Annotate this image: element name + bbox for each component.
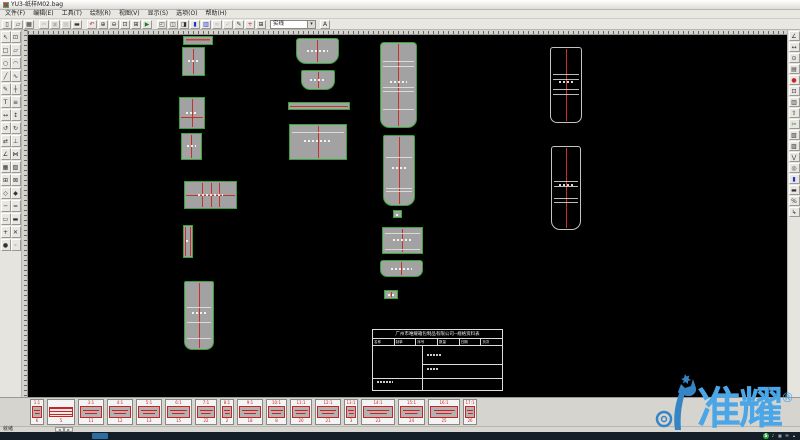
piece-i[interactable]: [301, 70, 335, 90]
line-icon[interactable]: ╱: [1, 70, 11, 82]
pattern-icon[interactable]: ▧: [11, 161, 21, 173]
toolbar-icon-group: ▯▱▦✂▣▤▬↶⊕⊖⊡⊞▶◰◫◨▮▥∞✓✎+⊞: [2, 20, 266, 29]
thumbnail-drawing: [49, 407, 73, 417]
title-block-note: [427, 354, 441, 356]
piece-label-marks: [307, 50, 328, 52]
grade-icon[interactable]: ▨: [789, 141, 800, 151]
dline-icon[interactable]: ═: [11, 200, 21, 212]
piece-s[interactable]: [551, 146, 581, 230]
thumbnail-drawing: [268, 406, 285, 418]
thumbnail-number: 11: [79, 418, 103, 424]
stitch-line: [383, 91, 414, 92]
stitch-line: [386, 188, 412, 189]
select-icon[interactable]: ↖: [1, 31, 11, 43]
stitch-line: [554, 202, 578, 203]
open-icon[interactable]: ▱: [13, 20, 23, 29]
export-icon[interactable]: ⇧: [789, 108, 800, 118]
stitch-line: [383, 87, 414, 88]
piece-label-marks: [304, 140, 332, 142]
cross-icon[interactable]: ┼: [11, 83, 21, 95]
rect-icon[interactable]: □: [1, 44, 11, 56]
plus-icon[interactable]: +: [1, 226, 11, 238]
piece-label-marks: [392, 167, 407, 169]
piece-list-icon[interactable]: ▥: [789, 97, 800, 107]
piece-j[interactable]: [288, 102, 350, 110]
window-split-icon[interactable]: ◨: [179, 20, 189, 29]
tray-message-icon[interactable]: ✉: [784, 433, 790, 439]
window-cascade-icon[interactable]: ◰: [157, 20, 167, 29]
mark-icon[interactable]: ●: [789, 75, 800, 85]
thumbnail-number: 3: [345, 418, 357, 424]
text-icon[interactable]: T: [1, 96, 11, 108]
node-icon[interactable]: ◦: [11, 239, 21, 251]
piece-label-marks: [198, 194, 224, 196]
title-block-col-2: 序号: [416, 339, 438, 345]
piece-thumbnail-strip: 1:1653:1114:1125:1136:1157:1228:129:1181…: [0, 397, 800, 426]
piece-label-marks: [388, 294, 394, 296]
dimension-icon[interactable]: ↔: [789, 42, 800, 52]
title-block-table: 广州市唯耀箱包制品有限公司--规格资料表 名称制单序号数量日期页次: [372, 329, 503, 391]
thumbnail-number: 25: [429, 418, 459, 424]
point-icon[interactable]: ●: [1, 239, 11, 251]
piece-n[interactable]: [382, 227, 423, 254]
top-toolbar: ▯▱▦✂▣▤▬↶⊕⊖⊡⊞▶◰◫◨▮▥∞✓✎+⊞ 实线 ▾ A: [0, 19, 800, 30]
thumbnail-drawing: [400, 406, 423, 418]
piece-label-marks: [393, 239, 413, 241]
title-block-col-4: 日期: [460, 339, 482, 345]
menu-item-4[interactable]: 视图(V): [115, 10, 144, 18]
piece-label-marks: [186, 112, 198, 114]
polygon-icon[interactable]: ▱: [11, 44, 21, 56]
stretch-icon[interactable]: ↕: [11, 109, 21, 121]
seam-icon[interactable]: ▧: [789, 130, 800, 140]
red-centerline: [566, 148, 567, 228]
piece-p[interactable]: [384, 290, 398, 299]
tray-volume-icon[interactable]: ♪: [770, 433, 776, 439]
thumbnail-9[interactable]: 9:118: [237, 399, 263, 425]
menu-item-0[interactable]: 文件(F): [1, 10, 29, 18]
tray-network-icon[interactable]: ▦: [777, 433, 783, 439]
app-icon: [3, 2, 9, 8]
piece-f[interactable]: [183, 225, 193, 258]
piece-k[interactable]: [289, 124, 347, 160]
piece-q[interactable]: [393, 210, 402, 218]
pencil-icon[interactable]: ✎: [1, 83, 11, 95]
taskbar-active-item[interactable]: [92, 433, 108, 439]
piece-e[interactable]: [184, 181, 237, 209]
thumbnail-number: 22: [196, 418, 216, 424]
stitch-line: [383, 109, 414, 110]
drawing-canvas[interactable]: 广州市唯耀箱包制品有限公司--规格资料表 名称制单序号数量日期页次: [28, 35, 787, 397]
line-style-combo[interactable]: 实线 ▾: [270, 20, 316, 29]
window-title: YU3-纸样M02.bag: [11, 0, 63, 9]
print-icon[interactable]: ▬: [72, 20, 82, 29]
mirror-icon[interactable]: ⇄: [1, 135, 11, 147]
chevron-down-icon[interactable]: ▾: [307, 21, 315, 28]
thumbnail-drawing: [167, 406, 190, 418]
solid-bar-icon[interactable]: ▬: [11, 213, 21, 225]
notch-icon[interactable]: ⋁: [789, 152, 800, 162]
thumbnail-drawing: [465, 406, 475, 418]
undo-icon[interactable]: ↶: [87, 20, 97, 29]
cut-icon[interactable]: ✂: [39, 20, 49, 29]
thumbnail-number: 23: [362, 418, 394, 424]
diamond-icon[interactable]: ◇: [1, 187, 11, 199]
table-icon[interactable]: ⊞: [256, 20, 266, 29]
thumbnail-12[interactable]: 12:121: [315, 399, 341, 425]
delete-icon[interactable]: ⊠: [11, 174, 21, 186]
piece-label-marks: [310, 79, 326, 81]
layer-icon[interactable]: ▥: [201, 20, 211, 29]
piece-d[interactable]: [181, 133, 202, 160]
red-line: [290, 106, 348, 107]
thumbnail-number: 6: [31, 418, 43, 424]
bar-icon[interactable]: ▭: [1, 213, 11, 225]
thumbnail-drawing: [109, 406, 131, 418]
piece-label-marks: [559, 184, 573, 186]
thumbnail-11[interactable]: 11:120: [290, 399, 312, 425]
stitch-line: [554, 198, 578, 199]
stitch-line: [187, 322, 211, 323]
thumbnail-10[interactable]: 10:18: [266, 399, 287, 425]
zoom-window-icon[interactable]: ⊡: [120, 20, 130, 29]
grid-icon[interactable]: ▦: [1, 161, 11, 173]
title-block-note: [377, 381, 393, 383]
hatch-icon[interactable]: ≡: [11, 96, 21, 108]
stitch-line: [553, 79, 579, 80]
piece-label-marks: [396, 214, 400, 216]
zoom-in-icon[interactable]: ⊕: [98, 20, 108, 29]
thumbnail-4[interactable]: 4:112: [107, 399, 133, 425]
thumbnail-drawing: [239, 406, 261, 418]
stitch-line: [554, 181, 578, 182]
stitch-line: [383, 61, 414, 62]
thumbnail-17[interactable]: 17:126: [463, 399, 477, 425]
window-tile-icon[interactable]: ◫: [168, 20, 178, 29]
title-block-col-5: 页次: [481, 339, 502, 345]
save-icon[interactable]: ▦: [24, 20, 34, 29]
title-block-header: 广州市唯耀箱包制品有限公司--规格资料表: [373, 330, 502, 339]
thumbnail-number: 24: [399, 418, 424, 424]
canvas-column: 广州市唯耀箱包制品有限公司--规格资料表 名称制单序号数量日期页次: [28, 30, 787, 397]
printer-icon[interactable]: ▬: [789, 185, 800, 195]
stitch-line: [292, 132, 344, 133]
thumbnail-drawing: [346, 406, 356, 418]
thumbnail-3[interactable]: 3:111: [78, 399, 104, 425]
menu-bar: 文件(F)编辑(E)工具(T)绘制(R)视图(V)显示(S)选项(O)帮助(H): [0, 10, 800, 19]
circle-dim-icon[interactable]: ⊙: [789, 53, 800, 63]
menu-item-5[interactable]: 显示(S): [144, 10, 173, 18]
measure-icon[interactable]: ∠: [789, 31, 800, 41]
fill-icon[interactable]: ▮: [789, 174, 800, 184]
piece-label-marks: [186, 240, 190, 242]
thumbnail-number: 12: [108, 418, 132, 424]
thumbnail-14[interactable]: 14:123: [361, 399, 395, 425]
windows-taskbar: S♪▦✉▴: [0, 432, 800, 440]
thumbnail-number: 21: [316, 418, 340, 424]
zoom-out-icon[interactable]: ⊖: [109, 20, 119, 29]
app-window: YU3-纸样M02.bag 文件(F)编辑(E)工具(T)绘制(R)视图(V)显…: [0, 0, 800, 440]
thumbnail-drawing: [292, 406, 310, 418]
thumbnail-drawing: [430, 406, 458, 418]
right-toolbar: ∠↔⊙▤●⊡▥⇧✂▧▨⋁◎▮▬%↳: [787, 30, 800, 397]
zoom-all-icon[interactable]: ⊞: [131, 20, 141, 29]
text-style-icon[interactable]: A: [320, 20, 330, 29]
piece-m[interactable]: [383, 135, 415, 206]
left-toolbar: ↖⊡□▱○◠╱∿✎┼T≡↔↕↺↻⇄⊥∠⋈▦▧⊞⊠◇◆─═▭▬+✕●◦: [0, 30, 22, 397]
title-block-body: [373, 346, 502, 390]
menu-item-3[interactable]: 绘制(R): [86, 10, 115, 18]
piece-label-marks: [391, 268, 412, 270]
redraw-icon[interactable]: ▶: [142, 20, 152, 29]
piece-label-marks: [390, 81, 408, 83]
thumbnail-drawing: [32, 406, 42, 418]
red-centerline: [190, 227, 191, 256]
perpendicular-icon[interactable]: ⊥: [11, 135, 21, 147]
thumbnail-7[interactable]: 7:122: [195, 399, 217, 425]
title-bar: YU3-纸样M02.bag: [0, 0, 800, 10]
thumbnail-16[interactable]: 16:125: [428, 399, 460, 425]
title-block-col-3: 数量: [438, 339, 460, 345]
thumbnail-drawing: [80, 406, 102, 418]
menu-item-6[interactable]: 选项(O): [172, 10, 201, 18]
scale-icon[interactable]: %: [789, 196, 800, 206]
thumbnail-1[interactable]: 1:16: [30, 399, 44, 425]
piece-label-marks: [188, 60, 199, 62]
red-line: [181, 117, 203, 118]
piece-strip-a[interactable]: [183, 36, 213, 45]
thumbnail-number: 15: [166, 418, 191, 424]
title-block-gridline: [422, 346, 423, 390]
piece-h[interactable]: [296, 38, 339, 64]
toolbar-separator: [83, 20, 86, 29]
thumbnail-6[interactable]: 6:115: [165, 399, 192, 425]
thumbnail-number: 8: [267, 418, 286, 424]
piece-label-marks: [559, 81, 574, 83]
piece-b[interactable]: [182, 47, 205, 76]
piece-r[interactable]: [550, 47, 582, 123]
fill-color-icon[interactable]: ▮: [190, 20, 200, 29]
stitch-line: [553, 94, 579, 95]
thumbnail-number: 26: [464, 418, 476, 424]
tray-arrow-icon[interactable]: ▴: [791, 433, 797, 439]
note-icon[interactable]: ▤: [789, 64, 800, 74]
join-icon[interactable]: ⋈: [11, 148, 21, 160]
move-icon[interactable]: ↔: [1, 109, 11, 121]
zoom-box-icon[interactable]: ⊡: [11, 31, 21, 43]
solid-diamond-icon[interactable]: ◆: [11, 187, 21, 199]
thumbnail-15[interactable]: 15:124: [398, 399, 425, 425]
frame-icon[interactable]: ⊡: [789, 86, 800, 96]
thumbnail-drawing: [138, 406, 160, 418]
thumbnail-number: 20: [291, 418, 311, 424]
add-icon[interactable]: +: [245, 20, 255, 29]
piece-c[interactable]: [179, 97, 205, 129]
thumbnail-2[interactable]: 5: [47, 399, 75, 425]
stitch-line: [385, 249, 420, 250]
paste-icon[interactable]: ▤: [61, 20, 71, 29]
tray-input-icon[interactable]: S: [763, 433, 769, 439]
piece-o[interactable]: [380, 260, 423, 277]
piece-red-text: [186, 39, 210, 42]
new-icon[interactable]: ▯: [2, 20, 12, 29]
curve-icon[interactable]: ∿: [11, 70, 21, 82]
thumbnail-drawing: [222, 406, 232, 418]
stitch-line: [553, 89, 579, 90]
thumbnail-drawing: [363, 406, 393, 418]
table-grid-icon[interactable]: ⊞: [1, 174, 11, 186]
red-centerline: [398, 44, 399, 126]
toolbar-separator: [35, 20, 38, 29]
red-centerline: [566, 49, 567, 121]
menu-item-7[interactable]: 帮助(H): [202, 10, 231, 18]
toolbar-separator: [153, 20, 156, 29]
thumbnail-number: 18: [238, 418, 262, 424]
hline-icon[interactable]: ─: [1, 200, 11, 212]
system-tray: S♪▦✉▴: [763, 433, 797, 439]
title-block-columns: 名称制单序号数量日期页次: [373, 339, 502, 346]
rotate-ccw-icon[interactable]: ↺: [1, 122, 11, 134]
piece-l[interactable]: [380, 42, 417, 128]
thumbnail-13[interactable]: 13:13: [344, 399, 358, 425]
title-block-gridline: [422, 364, 502, 365]
arrow-out-icon[interactable]: ↳: [789, 207, 800, 217]
main-area: ↖⊡□▱○◠╱∿✎┼T≡↔↕↺↻⇄⊥∠⋈▦▧⊞⊠◇◆─═▭▬+✕●◦ 广州市唯耀…: [0, 30, 800, 397]
piece-label-marks: [192, 312, 206, 314]
rotate-cw-icon[interactable]: ↻: [11, 122, 21, 134]
thumbnail-number: 13: [137, 418, 161, 424]
thumbnail-8[interactable]: 8:12: [220, 399, 234, 425]
menu-item-1[interactable]: 编辑(E): [29, 10, 57, 18]
angle-icon[interactable]: ∠: [1, 148, 11, 160]
piece-g[interactable]: [184, 281, 214, 350]
thumbnail-number: 5: [48, 418, 74, 424]
line-style-value: 实线: [271, 20, 307, 28]
stitch-line: [553, 74, 579, 75]
thumbnail-drawing: [317, 406, 339, 418]
thumbnail-number: 2: [221, 418, 233, 424]
check-icon[interactable]: ✓: [223, 20, 233, 29]
arc-icon[interactable]: ◠: [11, 57, 21, 69]
piece-label-marks: [187, 145, 197, 147]
circle-icon[interactable]: ○: [1, 57, 11, 69]
cut-piece-icon[interactable]: ✂: [789, 119, 800, 129]
thumbnail-drawing: [197, 406, 215, 418]
menu-item-2[interactable]: 工具(T): [58, 10, 86, 18]
stitch-line: [383, 66, 414, 67]
title-block-gridline: [373, 378, 502, 379]
stitch-line: [187, 338, 211, 339]
punch-icon[interactable]: ◎: [789, 163, 800, 173]
stitch-line: [386, 157, 412, 158]
link-icon[interactable]: ∞: [212, 20, 222, 29]
title-block-col-0: 名称: [373, 339, 395, 345]
stitch-line: [187, 307, 211, 308]
stitch-line: [385, 233, 420, 234]
stitch-line: [386, 191, 412, 192]
edit-icon[interactable]: ✎: [234, 20, 244, 29]
thumbnail-5[interactable]: 5:113: [136, 399, 162, 425]
red-centerline: [399, 137, 400, 204]
close-icon[interactable]: ✕: [11, 226, 21, 238]
title-block-col-1: 制单: [395, 339, 417, 345]
copy-icon[interactable]: ▣: [50, 20, 60, 29]
title-block-note: [427, 368, 439, 370]
thumbnail-scale-label: [48, 400, 74, 406]
